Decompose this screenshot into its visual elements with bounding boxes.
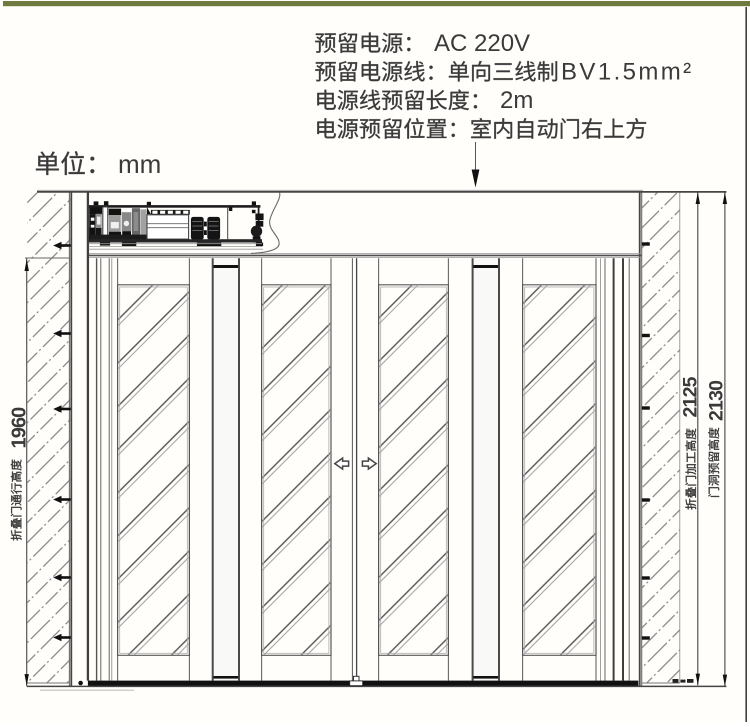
svg-text:AC 220V: AC 220V bbox=[434, 30, 530, 57]
svg-text:mm: mm bbox=[118, 149, 161, 179]
svg-text:BV1.5mm²: BV1.5mm² bbox=[561, 59, 694, 86]
svg-text:2m: 2m bbox=[500, 87, 533, 114]
